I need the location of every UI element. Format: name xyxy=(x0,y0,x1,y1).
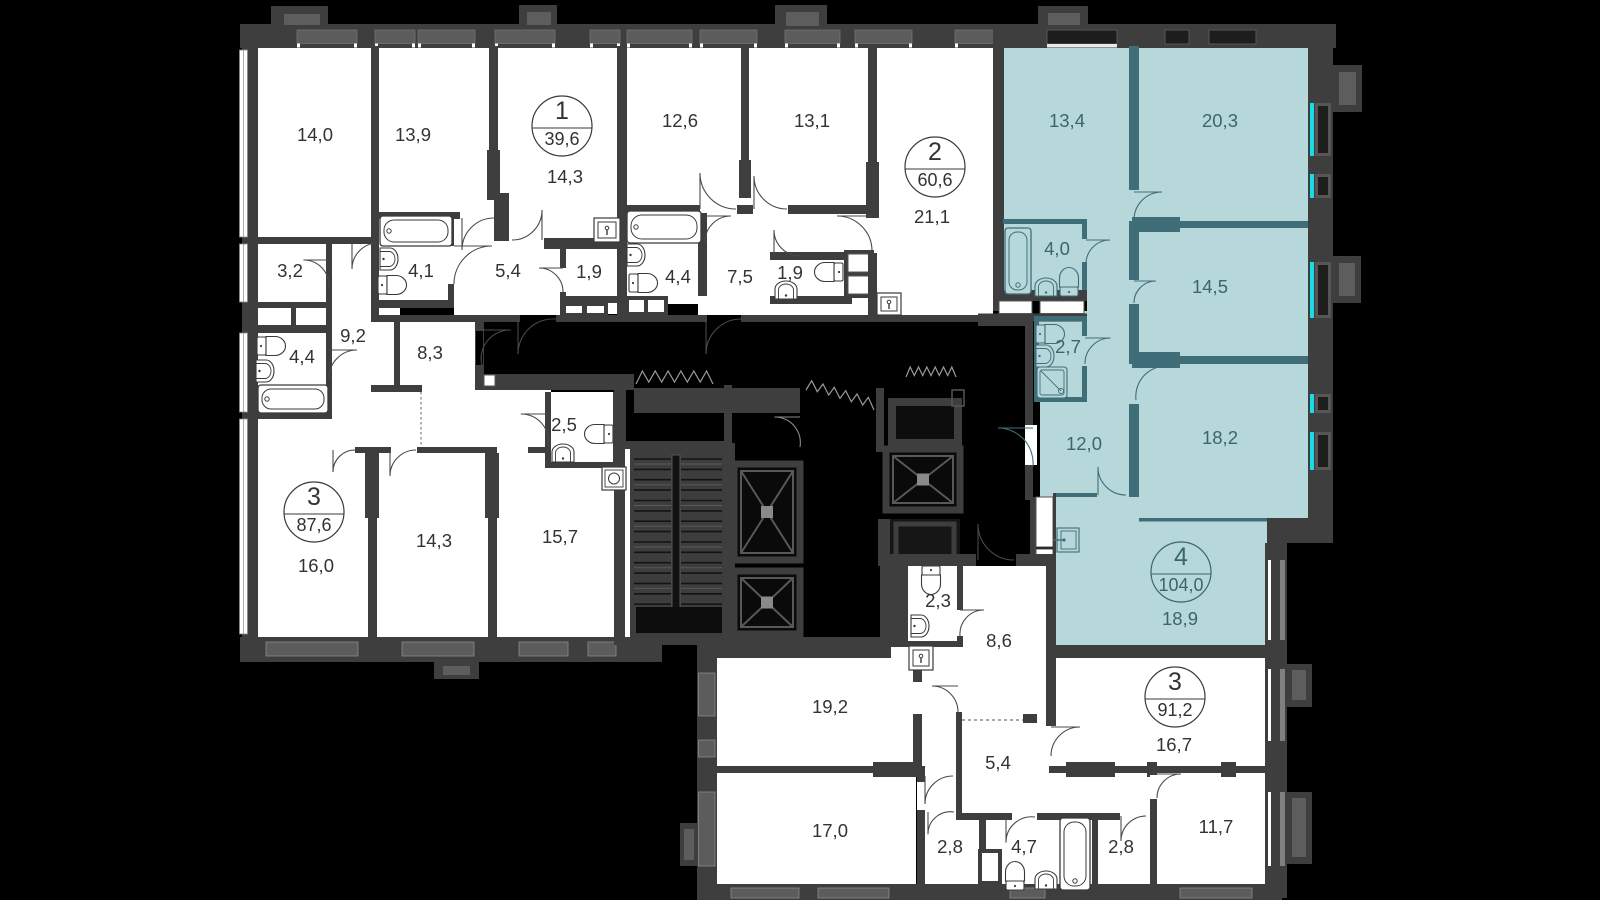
svg-text:7,5: 7,5 xyxy=(727,266,753,287)
svg-text:1,9: 1,9 xyxy=(576,261,602,282)
svg-text:5,4: 5,4 xyxy=(495,260,521,281)
svg-text:87,6: 87,6 xyxy=(296,515,331,535)
svg-text:5,4: 5,4 xyxy=(985,752,1011,773)
svg-text:2,7: 2,7 xyxy=(1055,336,1081,357)
svg-text:3: 3 xyxy=(307,483,321,511)
svg-text:3,2: 3,2 xyxy=(277,260,303,281)
svg-text:2: 2 xyxy=(928,138,942,166)
svg-text:104,0: 104,0 xyxy=(1158,575,1203,595)
svg-text:4,4: 4,4 xyxy=(665,266,691,287)
svg-text:2,3: 2,3 xyxy=(925,590,951,611)
svg-text:14,5: 14,5 xyxy=(1192,276,1228,297)
svg-text:1: 1 xyxy=(555,97,569,125)
svg-text:11,7: 11,7 xyxy=(1199,816,1234,837)
svg-text:8,6: 8,6 xyxy=(986,630,1012,651)
svg-text:15,7: 15,7 xyxy=(542,526,578,547)
svg-text:91,2: 91,2 xyxy=(1157,700,1192,720)
svg-text:4,7: 4,7 xyxy=(1011,836,1037,857)
svg-text:2,5: 2,5 xyxy=(551,414,577,435)
svg-text:13,9: 13,9 xyxy=(395,124,431,145)
svg-text:8,3: 8,3 xyxy=(417,342,443,363)
svg-text:13,1: 13,1 xyxy=(794,110,830,131)
svg-text:14,3: 14,3 xyxy=(416,530,452,551)
svg-text:18,9: 18,9 xyxy=(1162,608,1198,629)
svg-text:9,2: 9,2 xyxy=(340,325,366,346)
svg-text:4: 4 xyxy=(1174,543,1188,571)
svg-text:12,6: 12,6 xyxy=(662,110,698,131)
svg-text:17,0: 17,0 xyxy=(812,820,848,841)
svg-text:14,0: 14,0 xyxy=(297,124,333,145)
svg-text:12,0: 12,0 xyxy=(1066,433,1102,454)
svg-text:14,3: 14,3 xyxy=(547,166,583,187)
svg-text:16,7: 16,7 xyxy=(1156,734,1192,755)
svg-text:2,8: 2,8 xyxy=(937,836,963,857)
svg-text:18,2: 18,2 xyxy=(1202,427,1238,448)
svg-text:3: 3 xyxy=(1168,668,1182,696)
svg-text:4,1: 4,1 xyxy=(408,260,434,281)
svg-text:4,4: 4,4 xyxy=(289,346,315,367)
svg-text:2,8: 2,8 xyxy=(1108,836,1134,857)
svg-text:13,4: 13,4 xyxy=(1049,110,1085,131)
svg-text:21,1: 21,1 xyxy=(914,206,950,227)
svg-text:1,9: 1,9 xyxy=(777,262,803,283)
svg-text:60,6: 60,6 xyxy=(917,170,952,190)
svg-text:20,3: 20,3 xyxy=(1202,110,1238,131)
svg-text:19,2: 19,2 xyxy=(812,696,848,717)
svg-text:4,0: 4,0 xyxy=(1044,238,1070,259)
svg-text:16,0: 16,0 xyxy=(298,555,334,576)
svg-text:39,6: 39,6 xyxy=(544,129,579,149)
